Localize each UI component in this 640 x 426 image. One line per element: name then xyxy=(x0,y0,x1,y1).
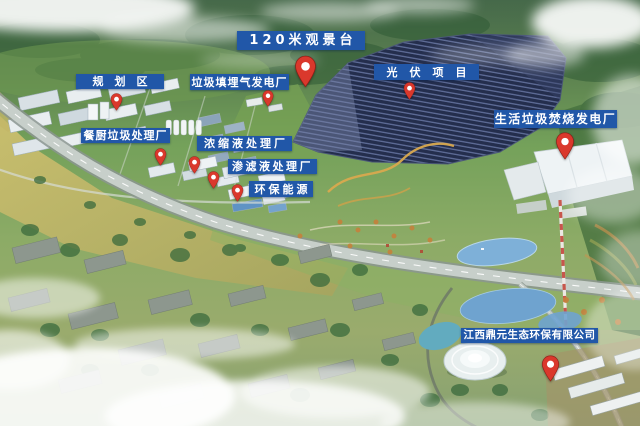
location-pin-concentrated-liquid-plant xyxy=(188,156,201,174)
aerial-eco-park-map: 120米观景台 规划区 垃圾填埋气发电厂 光伏项目 餐厨垃圾处理厂 浓缩液处理厂… xyxy=(0,0,640,426)
label-company-name: 江西鼎元生态环保有限公司 xyxy=(461,328,598,343)
map-pin-icon xyxy=(110,93,123,111)
label-kitchen-waste-plant: 餐厨垃圾处理厂 xyxy=(81,128,170,143)
location-pin-eco-energy xyxy=(231,184,244,202)
label-landfill-gas-power-plant: 垃圾填埋气发电厂 xyxy=(190,74,289,90)
label-eco-energy: 环保能源 xyxy=(249,181,313,197)
label-planning-area: 规划区 xyxy=(76,74,164,89)
label-waste-incineration-plant: 生活垃圾焚烧发电厂 xyxy=(494,110,617,128)
dome-building xyxy=(444,342,507,380)
location-pin-landfill-gas-plant xyxy=(262,90,274,107)
location-pin-company xyxy=(541,355,560,382)
map-pin-icon xyxy=(188,156,201,174)
label-observation-deck: 120米观景台 xyxy=(237,31,365,50)
map-pin-icon xyxy=(555,132,575,160)
map-pin-icon xyxy=(231,184,244,202)
map-pin-icon xyxy=(262,90,274,107)
map-pin-icon xyxy=(541,355,560,382)
map-pin-icon xyxy=(403,82,416,100)
location-pin-leachate-plant xyxy=(207,171,220,189)
map-pin-icon xyxy=(207,171,220,189)
label-leachate-plant: 渗滤液处理厂 xyxy=(228,159,317,174)
map-pin-icon xyxy=(154,148,167,166)
location-pin-planning-area xyxy=(110,93,123,111)
label-photovoltaic-project: 光伏项目 xyxy=(374,64,479,80)
location-pin-kitchen-waste-plant xyxy=(154,148,167,166)
location-pin-observation-deck xyxy=(294,55,317,88)
location-pin-photovoltaic-project xyxy=(403,82,416,100)
location-pin-waste-incineration-plant xyxy=(555,132,575,160)
map-pin-icon xyxy=(294,55,317,88)
label-concentrated-liquid-plant: 浓缩液处理厂 xyxy=(197,136,292,151)
